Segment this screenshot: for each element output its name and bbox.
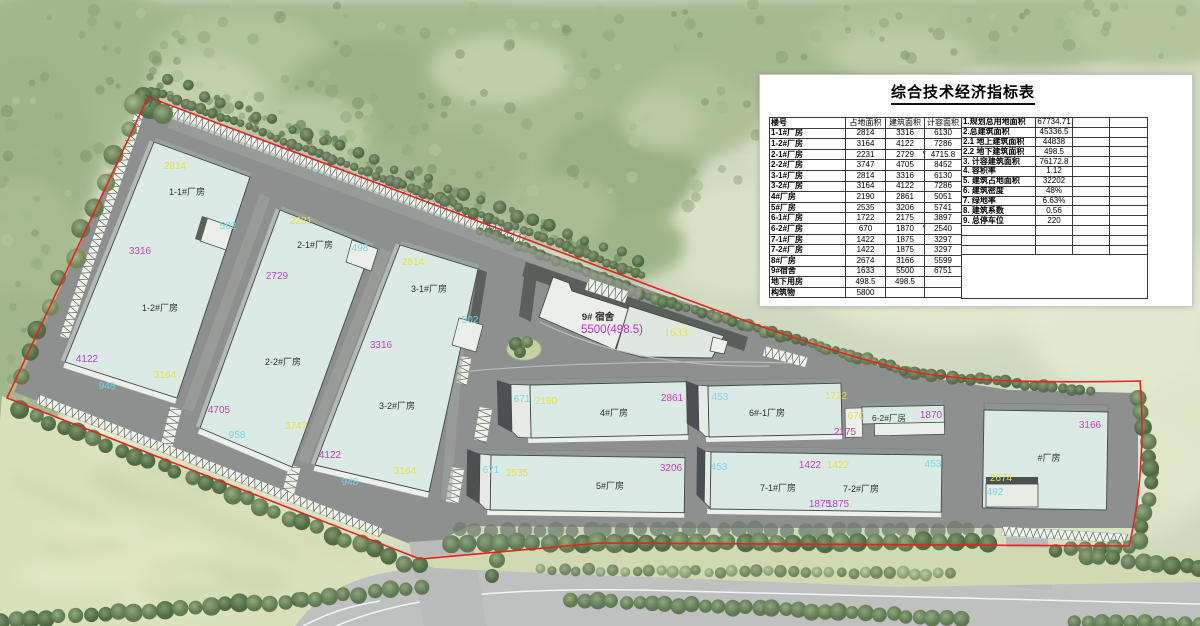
svg-text:2729: 2729	[266, 271, 289, 282]
svg-text:1-1#厂房: 1-1#厂房	[169, 186, 205, 197]
svg-text:948: 948	[342, 477, 359, 488]
svg-text:3316: 3316	[370, 340, 393, 351]
svg-text:2190: 2190	[535, 396, 558, 407]
svg-text:2-2#厂房: 2-2#厂房	[265, 356, 301, 367]
svg-text:948: 948	[99, 381, 116, 392]
svg-text:1633: 1633	[664, 325, 688, 339]
svg-text:2814: 2814	[402, 257, 425, 268]
svg-text:9# 宿舍: 9# 宿舍	[582, 311, 615, 323]
svg-text:2535: 2535	[506, 468, 529, 479]
svg-text:6-2#厂房: 6-2#厂房	[872, 413, 906, 423]
svg-text:2231: 2231	[290, 216, 313, 227]
svg-text:671: 671	[514, 394, 531, 405]
svg-text:453: 453	[712, 392, 729, 403]
svg-text:502: 502	[220, 221, 237, 232]
svg-text:492: 492	[987, 487, 1004, 498]
svg-text:4705: 4705	[208, 405, 231, 416]
svg-text:2674: 2674	[990, 473, 1013, 484]
svg-text:3206: 3206	[660, 463, 683, 474]
svg-text:5#厂房: 5#厂房	[596, 480, 624, 491]
svg-text:502: 502	[462, 315, 479, 326]
svg-text:4122: 4122	[319, 450, 342, 461]
svg-text:2-1#厂房: 2-1#厂房	[297, 239, 333, 250]
svg-text:4#厂房: 4#厂房	[600, 407, 628, 418]
svg-text:2175: 2175	[834, 427, 857, 438]
svg-text:453: 453	[925, 459, 942, 470]
svg-text:2861: 2861	[661, 393, 684, 404]
svg-text:3-2#厂房: 3-2#厂房	[379, 400, 415, 411]
svg-text:3166: 3166	[1079, 420, 1102, 431]
svg-text:670: 670	[848, 411, 865, 422]
svg-text:6#-1厂房: 6#-1厂房	[749, 407, 785, 418]
svg-text:5500(498.5): 5500(498.5)	[581, 324, 643, 336]
svg-text:498: 498	[352, 243, 369, 254]
svg-text:4122: 4122	[76, 354, 99, 365]
svg-text:3-1#厂房: 3-1#厂房	[411, 283, 447, 294]
svg-text:1722: 1722	[825, 391, 848, 402]
svg-text:671: 671	[483, 465, 500, 476]
svg-text:7-2#厂房: 7-2#厂房	[843, 483, 879, 494]
svg-text:#厂房: #厂房	[1037, 452, 1060, 463]
svg-text:958: 958	[229, 430, 246, 441]
svg-text:3747: 3747	[285, 421, 308, 432]
svg-text:1870: 1870	[920, 410, 943, 421]
svg-text:453: 453	[711, 462, 728, 473]
svg-text:3164: 3164	[154, 370, 177, 381]
svg-text:1875: 1875	[827, 499, 850, 510]
svg-text:1422: 1422	[827, 460, 850, 471]
svg-text:3164: 3164	[394, 466, 417, 477]
svg-text:3316: 3316	[129, 246, 152, 257]
svg-text:2814: 2814	[164, 161, 187, 172]
svg-text:7-1#厂房: 7-1#厂房	[760, 482, 796, 493]
svg-text:1422: 1422	[799, 460, 822, 471]
svg-text:1-2#厂房: 1-2#厂房	[142, 302, 178, 313]
